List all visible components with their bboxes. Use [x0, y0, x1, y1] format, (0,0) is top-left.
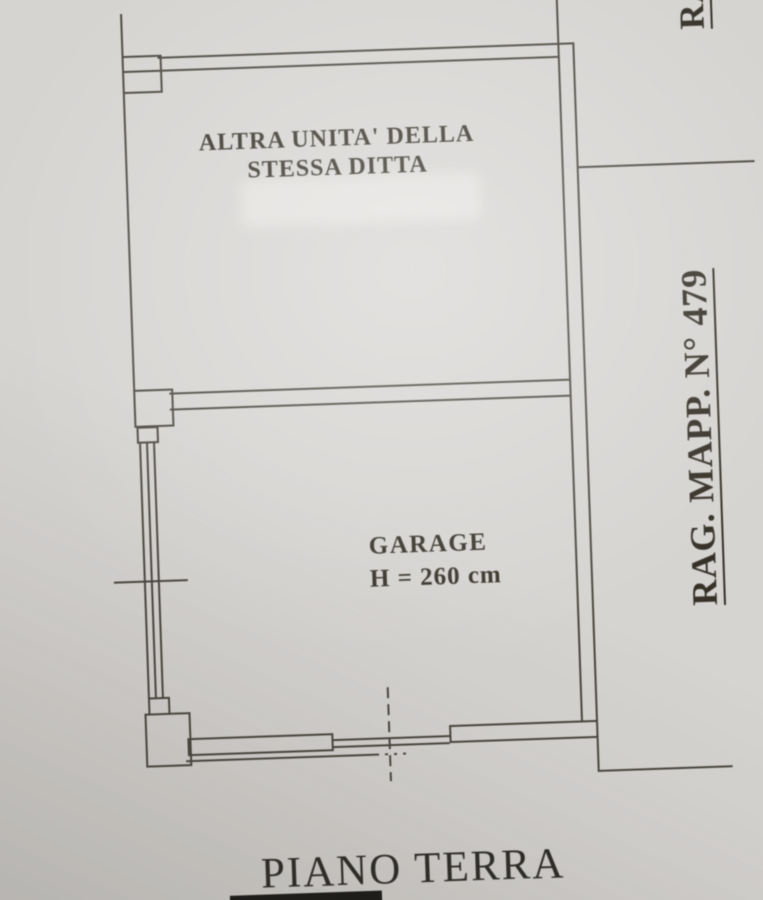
floorplan-photo: ALTRA UNITA' DELLA STESSA DITTA GARAGE H…: [0, 0, 763, 900]
wall-bottom-dotted-segment: [376, 752, 410, 755]
wall-right-inner: [558, 56, 583, 721]
wall-left-top-stub: [120, 14, 124, 58]
wall-divider-lower: [170, 395, 572, 411]
garage-height-note: H = 260 cm: [369, 558, 502, 596]
wall-bottom-right-bar: [449, 720, 599, 743]
wall-left-upper: [123, 92, 135, 392]
pillar-mid-left: [133, 389, 174, 428]
wall-top-outer: [158, 42, 575, 59]
door-threshold-line-2: [334, 742, 450, 748]
parcel-label-479: RAG. MAPP. N° 479: [672, 246, 729, 627]
wall-right-top-stub: [556, 0, 560, 56]
garage-name: GARAGE: [368, 525, 501, 563]
floorplan-drawing: ALTRA UNITA' DELLA STESSA DITTA GARAGE H…: [0, 0, 763, 900]
wall-right-outer: [572, 42, 599, 772]
boundary-line-bottom-right: [600, 765, 733, 772]
wall-top-inner: [122, 56, 560, 73]
boundary-line-right: [579, 160, 755, 168]
garage-door-leaf-bar: [187, 733, 334, 756]
garage-label: GARAGE H = 260 cm: [368, 525, 502, 596]
door-threshold-line-1: [333, 735, 449, 741]
door-centerline: [387, 687, 392, 781]
parcel-label-partial: RAG.: [669, 0, 714, 55]
wall-divider-upper: [169, 379, 571, 395]
page-title: PIANO TERRA: [252, 839, 574, 899]
pillar-top-left: [122, 55, 163, 94]
